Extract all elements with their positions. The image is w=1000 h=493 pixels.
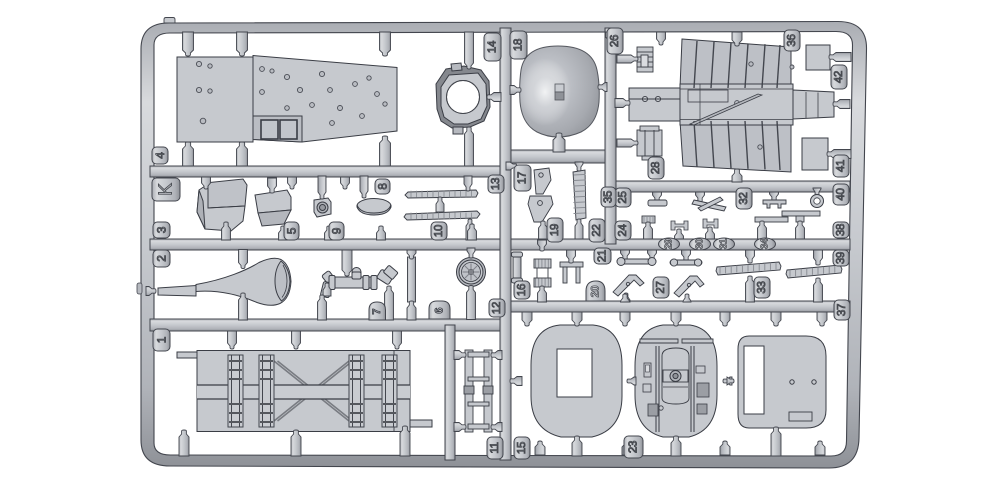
svg-text:31: 31 (719, 238, 730, 249)
svg-text:37: 37 (836, 304, 848, 316)
svg-text:1: 1 (155, 336, 169, 343)
svg-text:4: 4 (153, 152, 167, 159)
svg-text:8: 8 (376, 183, 390, 190)
svg-text:30: 30 (695, 238, 706, 249)
svg-text:41: 41 (835, 160, 847, 172)
svg-text:42: 42 (833, 71, 845, 83)
svg-text:38: 38 (835, 224, 847, 236)
svg-text:33: 33 (756, 281, 768, 293)
svg-text:20: 20 (590, 286, 602, 298)
svg-text:23: 23 (628, 441, 640, 453)
svg-text:17: 17 (517, 172, 529, 184)
svg-text:12: 12 (491, 302, 503, 314)
svg-text:19: 19 (549, 224, 561, 236)
svg-text:11: 11 (489, 442, 501, 453)
svg-text:32: 32 (738, 192, 750, 204)
svg-text:5: 5 (285, 227, 299, 234)
svg-text:40: 40 (835, 188, 847, 200)
svg-text:2: 2 (155, 255, 169, 262)
svg-text:13: 13 (490, 178, 502, 190)
svg-text:35: 35 (603, 191, 615, 203)
svg-text:34: 34 (760, 238, 771, 249)
svg-text:22: 22 (591, 224, 603, 236)
svg-text:16: 16 (516, 284, 528, 296)
svg-text:10: 10 (433, 225, 445, 237)
svg-text:7: 7 (371, 308, 383, 314)
svg-text:18: 18 (513, 39, 525, 51)
svg-text:6: 6 (434, 307, 446, 313)
svg-text:28: 28 (650, 162, 662, 174)
svg-text:9: 9 (330, 227, 344, 234)
svg-text:27: 27 (655, 281, 667, 293)
svg-text:39: 39 (835, 252, 847, 264)
svg-text:14: 14 (487, 40, 499, 53)
svg-text:36: 36 (786, 34, 798, 46)
svg-text:25: 25 (617, 191, 629, 203)
svg-text:29: 29 (664, 238, 675, 249)
svg-text:K: K (156, 183, 177, 196)
svg-text:24: 24 (617, 224, 629, 237)
svg-text:21: 21 (597, 250, 609, 262)
svg-text:3: 3 (155, 226, 169, 233)
svg-text:15: 15 (516, 442, 528, 454)
svg-text:26: 26 (609, 35, 621, 47)
